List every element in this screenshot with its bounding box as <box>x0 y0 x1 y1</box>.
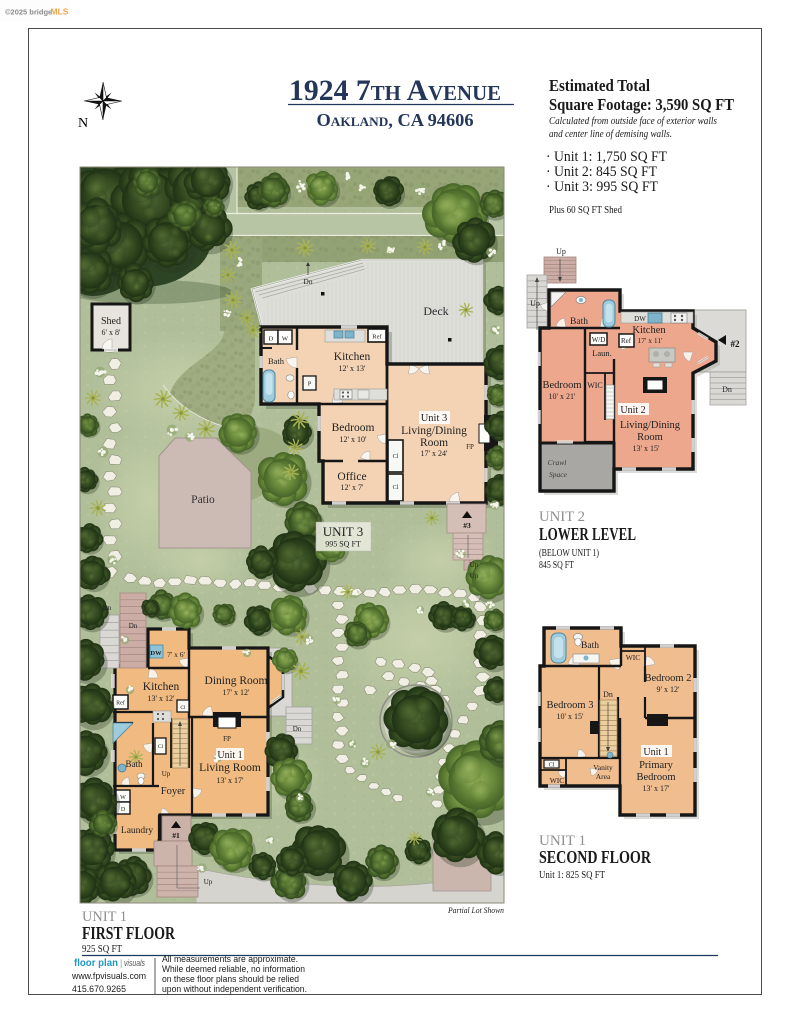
svg-text:10' x 21': 10' x 21' <box>549 392 576 401</box>
svg-text:Dining Room: Dining Room <box>205 675 268 687</box>
svg-text:Unit 1: Unit 1 <box>643 747 668 758</box>
svg-text:Up: Up <box>556 247 566 256</box>
svg-text:Square Footage: 3,590 SQ FT: Square Footage: 3,590 SQ FT <box>549 95 735 114</box>
svg-text:#3: #3 <box>463 521 471 530</box>
svg-text:Cl: Cl <box>180 705 186 711</box>
svg-text:W: W <box>282 336 289 343</box>
svg-text:Up: Up <box>530 299 540 308</box>
svg-text:Kitchen: Kitchen <box>143 681 180 693</box>
svg-text:6' x 8': 6' x 8' <box>102 328 121 337</box>
svg-text:Living/Dining: Living/Dining <box>401 425 467 437</box>
svg-text:Laundry: Laundry <box>121 826 153 836</box>
svg-text:D: D <box>121 807 126 813</box>
svg-text:· Unit 2: 845 SQ FT: · Unit 2: 845 SQ FT <box>546 164 657 180</box>
svg-text:N: N <box>78 116 88 131</box>
svg-text:Primary: Primary <box>639 760 674 771</box>
svg-text:Unit 1: 825 SQ FT: Unit 1: 825 SQ FT <box>539 870 605 881</box>
svg-text:Unit 1: Unit 1 <box>217 750 242 761</box>
svg-text:Bath: Bath <box>581 641 599 651</box>
svg-text:Room: Room <box>420 437 448 449</box>
svg-text:17' x 12': 17' x 12' <box>223 688 250 697</box>
svg-text:17' x 11': 17' x 11' <box>638 336 664 345</box>
svg-text:Dn: Dn <box>103 604 112 612</box>
svg-text:Bedroom: Bedroom <box>332 422 375 434</box>
svg-text:UNIT 2: UNIT 2 <box>539 509 585 525</box>
svg-text:©2025 bridge: ©2025 bridge <box>5 8 52 17</box>
svg-text:Bath: Bath <box>126 759 143 769</box>
svg-text:Dn: Dn <box>722 385 732 394</box>
svg-text:13' x 12': 13' x 12' <box>148 694 175 703</box>
svg-text:Dn: Dn <box>129 622 138 630</box>
svg-text:FP: FP <box>466 443 474 451</box>
svg-text:Partial Lot Shown: Partial Lot Shown <box>447 905 504 915</box>
svg-text:Calculated from outside face o: Calculated from outside face of exterior… <box>549 115 717 127</box>
svg-text:10' x 15': 10' x 15' <box>557 712 584 721</box>
svg-text:#2: #2 <box>731 339 741 349</box>
svg-text:13' x 17': 13' x 17' <box>217 776 244 785</box>
svg-text:floor plan: floor plan <box>74 958 118 969</box>
svg-text:Cl: Cl <box>393 485 399 491</box>
svg-text:#1: #1 <box>172 831 180 840</box>
svg-text:Living/Dining: Living/Dining <box>620 420 681 431</box>
svg-text:· Unit 1: 1,750 SQ FT: · Unit 1: 1,750 SQ FT <box>546 149 667 165</box>
svg-text:Kitchen: Kitchen <box>334 351 371 363</box>
svg-text:1924 7th Avenue: 1924 7th Avenue <box>289 74 501 107</box>
svg-text:845 SQ FT: 845 SQ FT <box>539 560 574 571</box>
svg-text:· Unit 3: 995 SQ FT: · Unit 3: 995 SQ FT <box>546 179 658 195</box>
svg-text:Patio: Patio <box>191 494 215 506</box>
svg-text:Bedroom 3: Bedroom 3 <box>547 700 594 711</box>
svg-text:Up: Up <box>204 878 213 886</box>
svg-text:Dn: Dn <box>303 277 312 286</box>
svg-text:MLS: MLS <box>51 7 69 17</box>
svg-text:Ref: Ref <box>621 337 632 345</box>
svg-text:Plus 60 SQ FT Shed: Plus 60 SQ FT Shed <box>549 204 622 216</box>
svg-text:Cl: Cl <box>393 454 399 460</box>
svg-text:W/D: W/D <box>592 336 606 344</box>
svg-text:Deck: Deck <box>423 304 448 318</box>
svg-text:Kitchen: Kitchen <box>632 325 666 336</box>
svg-text:Vanity: Vanity <box>593 763 613 772</box>
svg-text:Shed: Shed <box>101 316 121 327</box>
svg-text:W: W <box>120 795 126 801</box>
svg-text:Foyer: Foyer <box>161 786 186 797</box>
svg-text:995 SQ FT: 995 SQ FT <box>325 540 361 549</box>
svg-text:Area: Area <box>596 772 611 781</box>
svg-text:Ref: Ref <box>372 334 382 341</box>
svg-text:D: D <box>269 336 274 343</box>
svg-text:WIC: WIC <box>550 776 565 785</box>
svg-text:|: | <box>120 958 122 968</box>
svg-text:WIC: WIC <box>626 653 641 662</box>
svg-text:Cl: Cl <box>158 744 164 750</box>
svg-text:upon without independent verif: upon without independent verification. <box>162 984 307 994</box>
svg-text:UNIT 3: UNIT 3 <box>323 524 364 539</box>
svg-text:on these floor plans should be: on these floor plans should be relied <box>162 974 299 984</box>
svg-text:Bedroom 2: Bedroom 2 <box>645 673 692 684</box>
svg-text:Oakland, CA 94606: Oakland, CA 94606 <box>317 110 474 130</box>
svg-text:Bath: Bath <box>570 317 588 327</box>
svg-text:Cl: Cl <box>549 763 555 769</box>
svg-text:SECOND FLOOR: SECOND FLOOR <box>539 847 652 867</box>
svg-text:Office: Office <box>337 471 366 483</box>
svg-text:Up: Up <box>470 561 479 569</box>
svg-text:13' x 15': 13' x 15' <box>633 444 660 453</box>
svg-text:FIRST FLOOR: FIRST FLOOR <box>82 923 176 943</box>
svg-text:Ref: Ref <box>116 700 125 707</box>
svg-text:While deemed reliable, no info: While deemed reliable, no information <box>162 964 305 974</box>
svg-text:9' x 12': 9' x 12' <box>657 685 680 694</box>
svg-text:12' x 13': 12' x 13' <box>339 364 366 373</box>
svg-text:FP: FP <box>223 735 231 743</box>
svg-text:www.fpvisuals.com: www.fpvisuals.com <box>71 971 146 982</box>
svg-text:Bedroom: Bedroom <box>542 380 581 391</box>
svg-text:415.670.9265: 415.670.9265 <box>72 984 126 995</box>
svg-text:17' x 24': 17' x 24' <box>421 449 448 458</box>
svg-text:Room: Room <box>637 432 663 443</box>
svg-text:Bath: Bath <box>268 356 285 366</box>
svg-text:Up: Up <box>162 770 171 778</box>
svg-text:(BELOW UNIT 1): (BELOW UNIT 1) <box>539 548 599 559</box>
svg-text:Dn: Dn <box>293 725 302 733</box>
svg-text:Space: Space <box>549 470 568 479</box>
svg-text:Unit 2: Unit 2 <box>620 405 645 416</box>
svg-text:Bedroom: Bedroom <box>636 772 675 783</box>
svg-text:13' x 17': 13' x 17' <box>643 784 670 793</box>
svg-text:Up: Up <box>470 572 479 580</box>
svg-text:DW: DW <box>634 315 646 323</box>
svg-text:and center line of demising wa: and center line of demising walls. <box>549 128 672 140</box>
svg-text:Laun.: Laun. <box>592 348 612 358</box>
svg-text:LOWER LEVEL: LOWER LEVEL <box>539 524 636 544</box>
svg-text:visuals: visuals <box>124 958 145 969</box>
svg-text:WIC: WIC <box>587 381 603 390</box>
svg-text:7' x 6': 7' x 6' <box>167 650 185 659</box>
svg-text:Dn: Dn <box>603 690 613 699</box>
svg-text:Living Room: Living Room <box>199 762 261 774</box>
svg-text:P: P <box>308 381 312 388</box>
svg-text:925 SQ FT: 925 SQ FT <box>82 944 122 955</box>
svg-text:All measurements are approxima: All measurements are approximate. <box>162 954 298 964</box>
svg-text:DW: DW <box>150 650 162 657</box>
svg-text:Estimated Total: Estimated Total <box>549 76 650 95</box>
svg-text:Crawl: Crawl <box>548 458 567 467</box>
svg-text:12' x 7': 12' x 7' <box>341 483 364 492</box>
svg-text:12' x 10': 12' x 10' <box>340 435 367 444</box>
svg-text:Unit 3: Unit 3 <box>421 413 448 424</box>
